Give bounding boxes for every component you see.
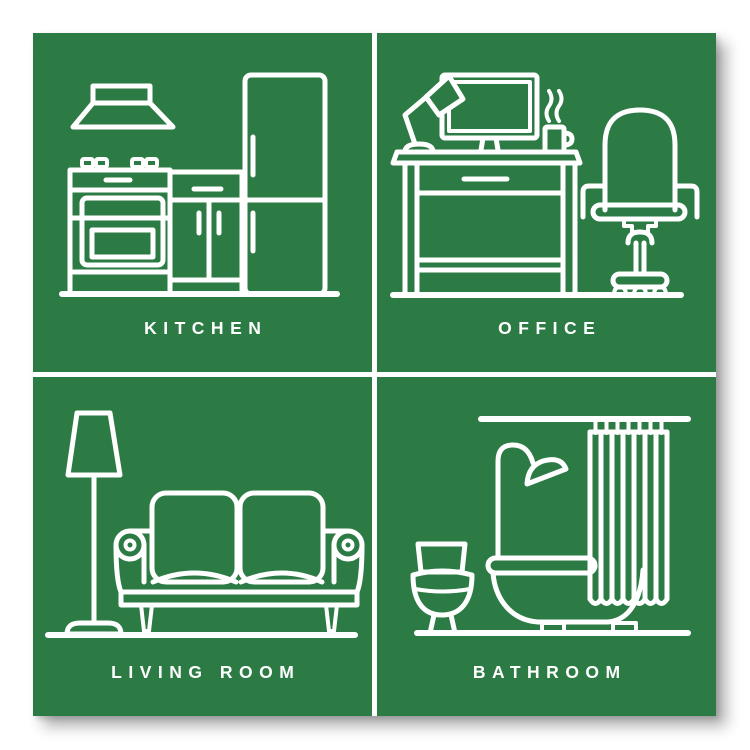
office-icon	[377, 33, 716, 303]
kitchen-icon	[33, 33, 372, 303]
bathroom-panel: BATHROOM	[377, 377, 716, 716]
shower-head-icon	[498, 445, 566, 558]
kitchen-label: KITCHEN	[33, 318, 372, 339]
living-room-label: LIVING ROOM	[33, 662, 372, 683]
bathtub-rim	[488, 558, 595, 573]
office-label: OFFICE	[377, 318, 716, 339]
office-panel: OFFICE	[377, 33, 716, 372]
stove-icon	[70, 159, 170, 294]
bathroom-label: BATHROOM	[377, 662, 716, 683]
kitchen-panel: KITCHEN	[33, 33, 372, 372]
cabinet-icon	[170, 172, 242, 294]
poster-card: KITCHEN	[33, 33, 716, 716]
living-room-panel: LIVING ROOM	[33, 377, 372, 716]
shower-curtain-icon	[590, 421, 667, 604]
living-room-icon	[33, 377, 372, 647]
fridge-icon	[245, 75, 325, 294]
range-hood-icon	[73, 86, 173, 127]
sofa-icon	[116, 493, 362, 631]
coffee-mug-icon	[545, 91, 572, 152]
bathroom-icon	[377, 377, 716, 647]
desk-icon	[393, 152, 580, 295]
toilet-icon	[413, 544, 472, 633]
floor-lamp-icon	[67, 413, 121, 634]
desk-lamp-icon	[405, 76, 463, 152]
office-chair-icon	[583, 110, 697, 295]
